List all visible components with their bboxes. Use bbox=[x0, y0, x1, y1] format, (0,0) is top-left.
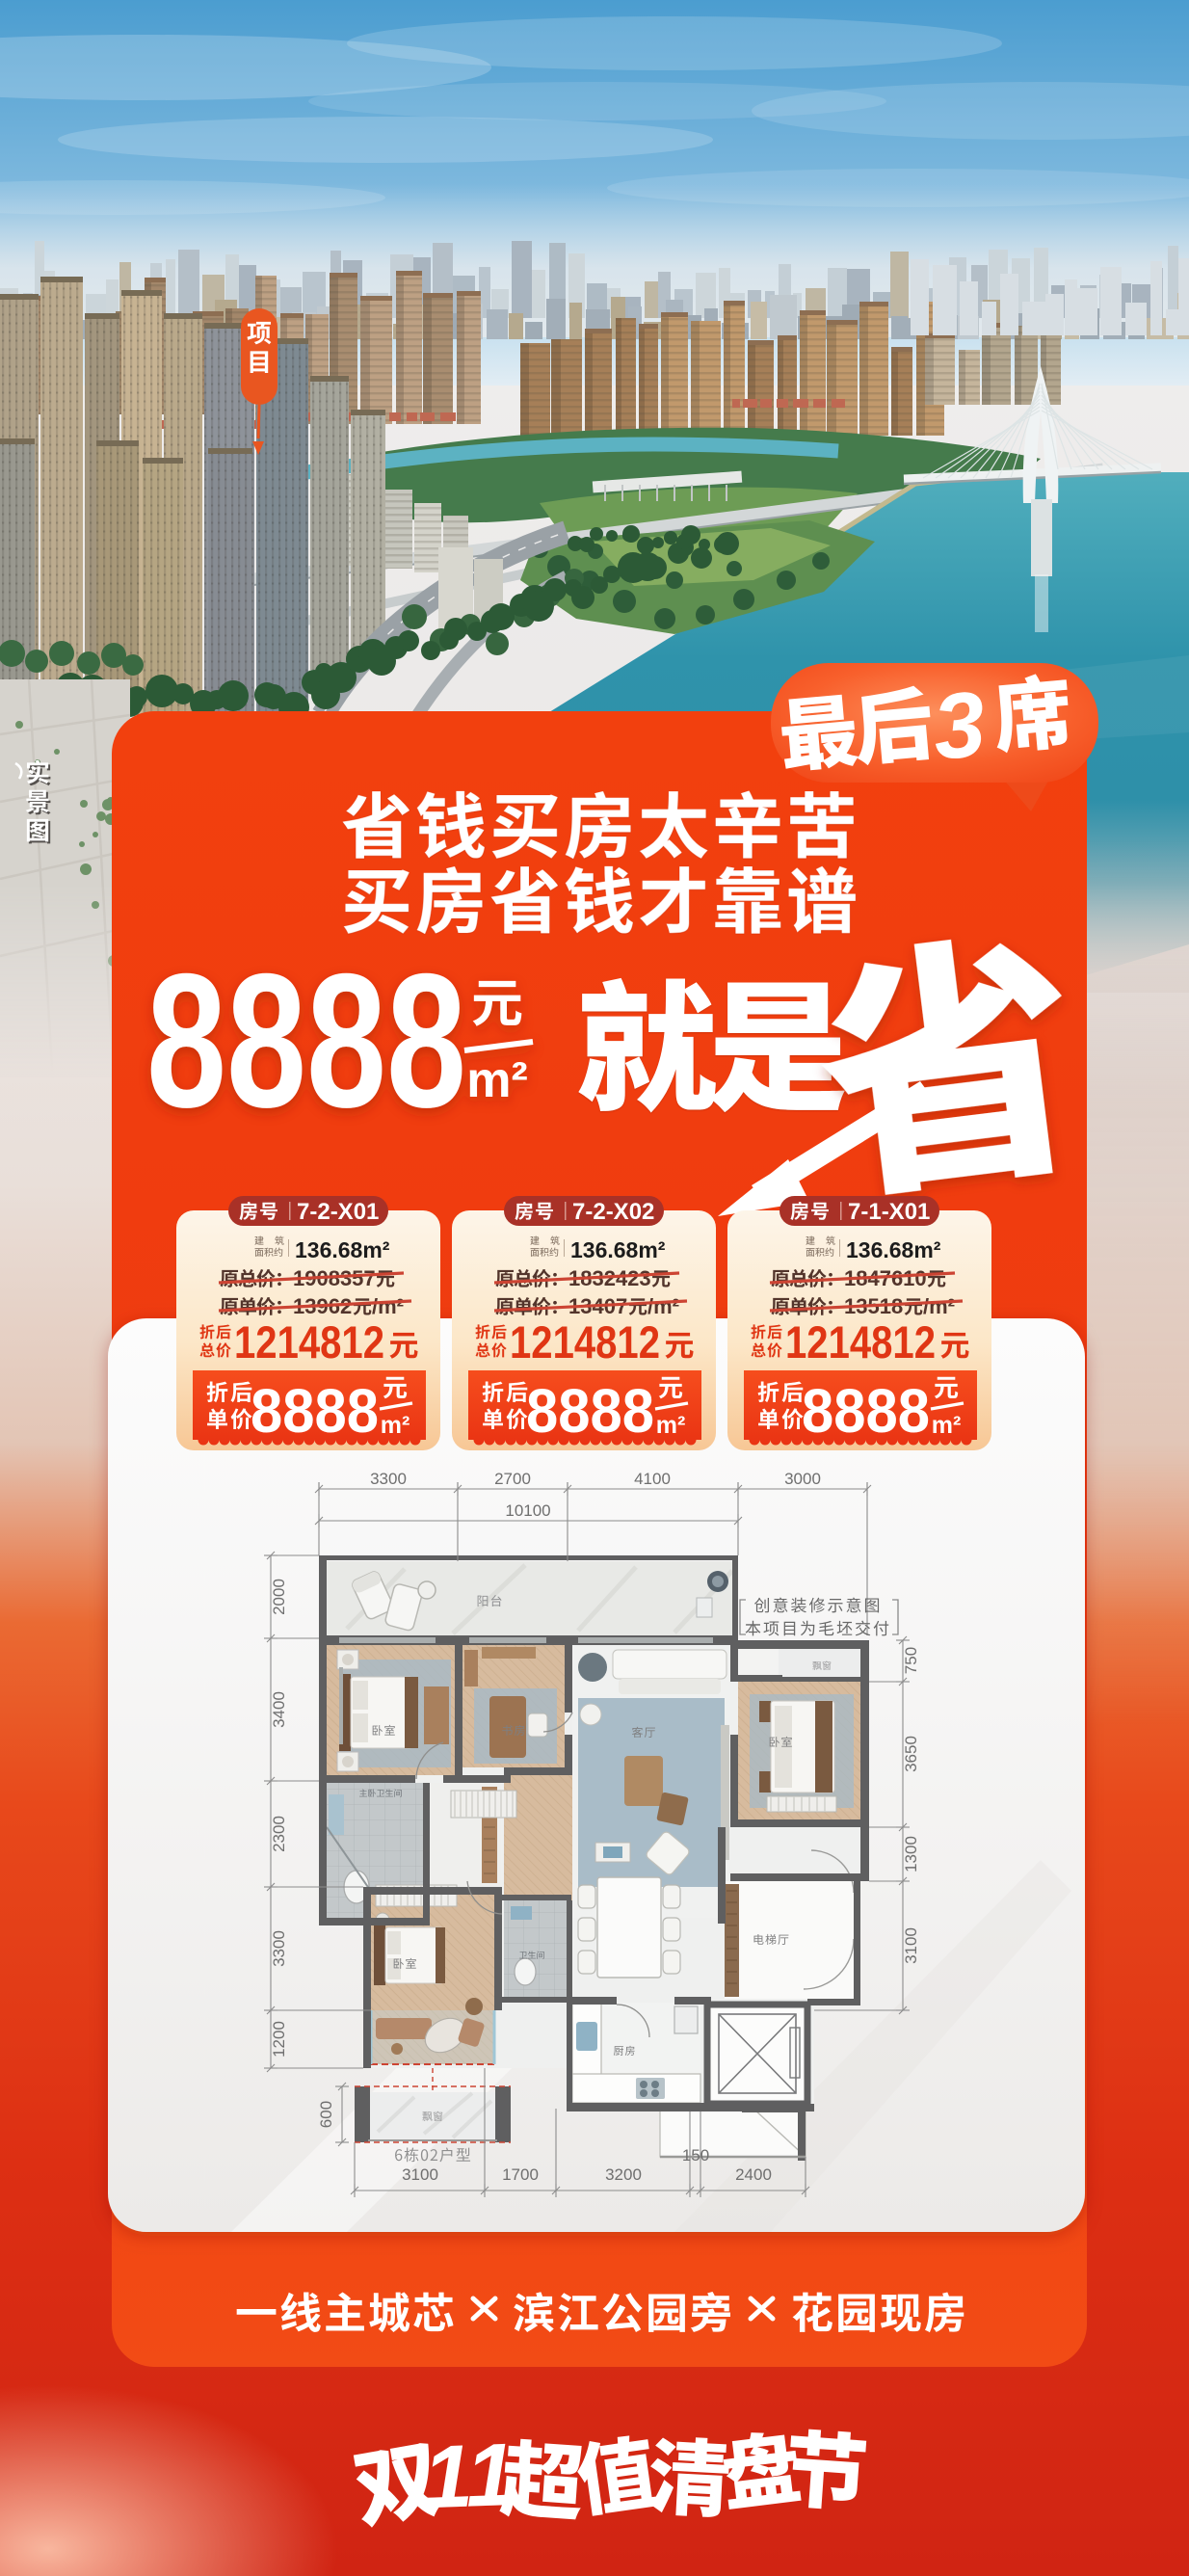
svg-text:2300: 2300 bbox=[270, 1816, 288, 1852]
svg-text:750: 750 bbox=[902, 1647, 920, 1674]
svg-text:1214812: 1214812 bbox=[510, 1316, 660, 1368]
svg-text:/m²: /m² bbox=[372, 1294, 404, 1318]
svg-text:136.68m²: 136.68m² bbox=[570, 1237, 666, 1262]
svg-text:7-2-X02: 7-2-X02 bbox=[572, 1199, 654, 1225]
svg-text:10100: 10100 bbox=[505, 1501, 550, 1520]
svg-text:3: 3 bbox=[929, 673, 990, 780]
svg-text:3300: 3300 bbox=[370, 1470, 407, 1488]
svg-text:1214812: 1214812 bbox=[234, 1316, 384, 1368]
svg-text:/m²: /m² bbox=[647, 1294, 679, 1318]
svg-text:7-2-X01: 7-2-X01 bbox=[297, 1199, 379, 1225]
svg-text:3100: 3100 bbox=[902, 1927, 920, 1964]
svg-text:m²: m² bbox=[656, 1412, 686, 1439]
svg-text:136.68m²: 136.68m² bbox=[846, 1237, 941, 1262]
svg-text:1200: 1200 bbox=[270, 2021, 288, 2058]
svg-text:/m²: /m² bbox=[923, 1294, 955, 1318]
svg-text:2400: 2400 bbox=[735, 2165, 772, 2184]
svg-text:1300: 1300 bbox=[902, 1836, 920, 1872]
svg-text:m²: m² bbox=[466, 1052, 528, 1108]
svg-text:1700: 1700 bbox=[502, 2165, 539, 2184]
svg-text:600: 600 bbox=[317, 2101, 335, 2128]
svg-text:150: 150 bbox=[682, 2146, 709, 2164]
svg-text:m²: m² bbox=[932, 1412, 962, 1439]
svg-text:136.68m²: 136.68m² bbox=[295, 1237, 390, 1262]
svg-text:2000: 2000 bbox=[270, 1579, 288, 1615]
svg-text:2700: 2700 bbox=[494, 1470, 531, 1488]
svg-text:3300: 3300 bbox=[270, 1930, 288, 1967]
svg-text:3100: 3100 bbox=[402, 2165, 438, 2184]
svg-text:3200: 3200 bbox=[605, 2165, 642, 2184]
svg-text:7-1-X01: 7-1-X01 bbox=[848, 1199, 930, 1225]
svg-text:8888: 8888 bbox=[526, 1376, 654, 1446]
svg-text:8888: 8888 bbox=[802, 1376, 930, 1446]
svg-text:3650: 3650 bbox=[902, 1736, 920, 1772]
svg-text:3000: 3000 bbox=[784, 1470, 821, 1488]
svg-text:4100: 4100 bbox=[634, 1470, 671, 1488]
svg-text:8888: 8888 bbox=[146, 934, 466, 1147]
svg-text:8888: 8888 bbox=[251, 1376, 379, 1446]
svg-text:3400: 3400 bbox=[270, 1691, 288, 1728]
svg-text:1214812: 1214812 bbox=[785, 1316, 936, 1368]
svg-text:m²: m² bbox=[381, 1412, 410, 1439]
